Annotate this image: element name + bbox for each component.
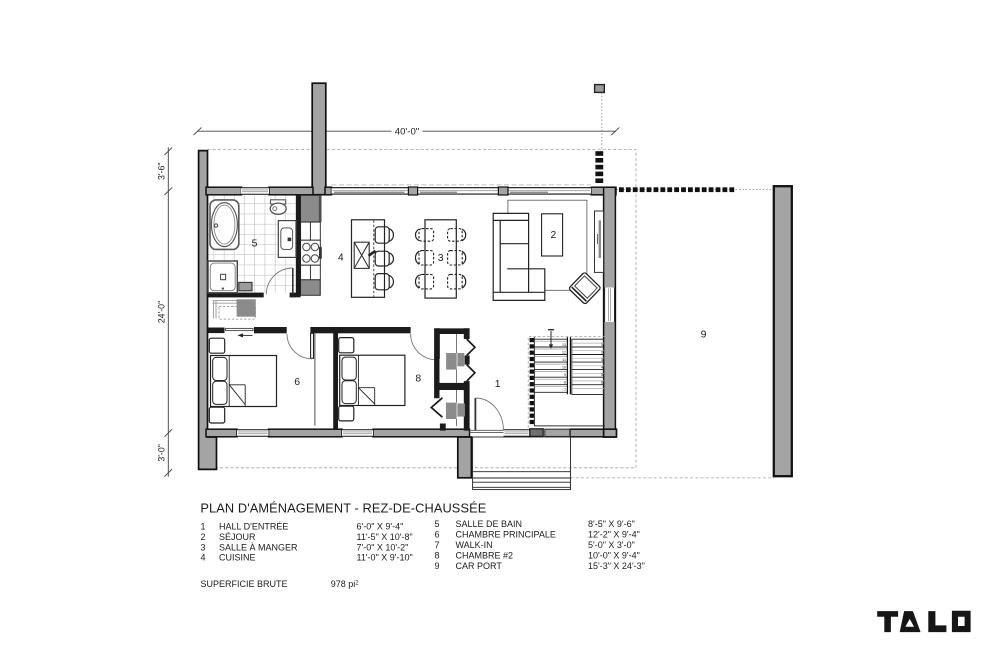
svg-text:978 pi2: 978 pi2 (331, 579, 360, 589)
svg-text:4: 4 (201, 553, 206, 563)
svg-text:8: 8 (415, 374, 421, 385)
svg-text:6: 6 (435, 529, 440, 539)
svg-text:3: 3 (201, 542, 206, 552)
svg-text:HALL D'ENTRÉE: HALL D'ENTRÉE (219, 522, 288, 532)
svg-text:5: 5 (601, 373, 603, 377)
svg-text:5'-0" X 3'-0": 5'-0" X 3'-0" (588, 540, 635, 550)
svg-text:7: 7 (435, 540, 440, 550)
svg-text:12'-2" X 9'-4": 12'-2" X 9'-4" (588, 529, 640, 539)
svg-text:CHAMBRE #2: CHAMBRE #2 (456, 550, 514, 560)
svg-text:10'-0" X 9'-4": 10'-0" X 9'-4" (588, 550, 640, 560)
svg-text:7: 7 (564, 388, 566, 392)
svg-text:1: 1 (495, 379, 501, 390)
svg-text:11'-0" X 9'-10": 11'-0" X 9'-10" (357, 553, 413, 563)
svg-text:9: 9 (701, 329, 707, 340)
svg-text:13: 13 (562, 343, 566, 347)
svg-text:5: 5 (435, 519, 440, 529)
svg-text:SÉJOUR: SÉJOUR (219, 532, 256, 542)
svg-text:3: 3 (601, 358, 603, 362)
svg-text:12: 12 (562, 350, 566, 354)
svg-text:3: 3 (438, 253, 444, 264)
svg-text:15'-3" X 24'-3": 15'-3" X 24'-3" (588, 561, 645, 571)
svg-text:PLAN D'AMÉNAGEMENT - REZ-DE-CH: PLAN D'AMÉNAGEMENT - REZ-DE-CHAUSSÉE (200, 500, 486, 515)
svg-text:4: 4 (338, 252, 344, 263)
svg-text:6'-0" X 9'-4": 6'-0" X 9'-4" (357, 522, 404, 532)
svg-text:WALK-IN: WALK-IN (456, 540, 493, 550)
svg-text:CAR PORT: CAR PORT (456, 561, 503, 571)
svg-text:1: 1 (201, 522, 206, 532)
svg-text:2: 2 (201, 532, 206, 542)
svg-text:CUISINE: CUISINE (219, 553, 256, 563)
svg-text:7'-0" X 10'-2": 7'-0" X 10'-2" (357, 542, 409, 552)
svg-text:6: 6 (601, 381, 603, 385)
svg-text:8'-5" X 9'-6": 8'-5" X 9'-6" (588, 519, 635, 529)
svg-text:8: 8 (564, 381, 566, 385)
svg-text:3'-0": 3'-0" (156, 444, 166, 462)
svg-text:9: 9 (435, 561, 440, 571)
svg-text:10: 10 (562, 365, 566, 369)
svg-text:SALLE DE BAIN: SALLE DE BAIN (456, 519, 523, 529)
svg-text:SALLE À MANGER: SALLE À MANGER (219, 542, 298, 552)
svg-text:SUPERFICIE BRUTE: SUPERFICIE BRUTE (201, 579, 288, 589)
svg-text:24'-0": 24'-0" (156, 301, 166, 323)
svg-text:1: 1 (601, 343, 603, 347)
svg-text:11'-5" X 10'-8": 11'-5" X 10'-8" (357, 532, 413, 542)
svg-text:8: 8 (435, 550, 440, 560)
svg-text:4: 4 (601, 365, 603, 369)
svg-text:5: 5 (252, 238, 258, 249)
svg-text:CHAMBRE PRINCIPALE: CHAMBRE PRINCIPALE (456, 529, 556, 539)
svg-text:11: 11 (562, 358, 566, 362)
svg-text:2: 2 (551, 230, 557, 241)
svg-text:40'-0": 40'-0" (395, 127, 419, 138)
svg-text:2: 2 (601, 350, 603, 354)
svg-text:6: 6 (294, 377, 300, 388)
svg-text:3'-6": 3'-6" (156, 162, 166, 180)
svg-text:9: 9 (564, 373, 566, 377)
